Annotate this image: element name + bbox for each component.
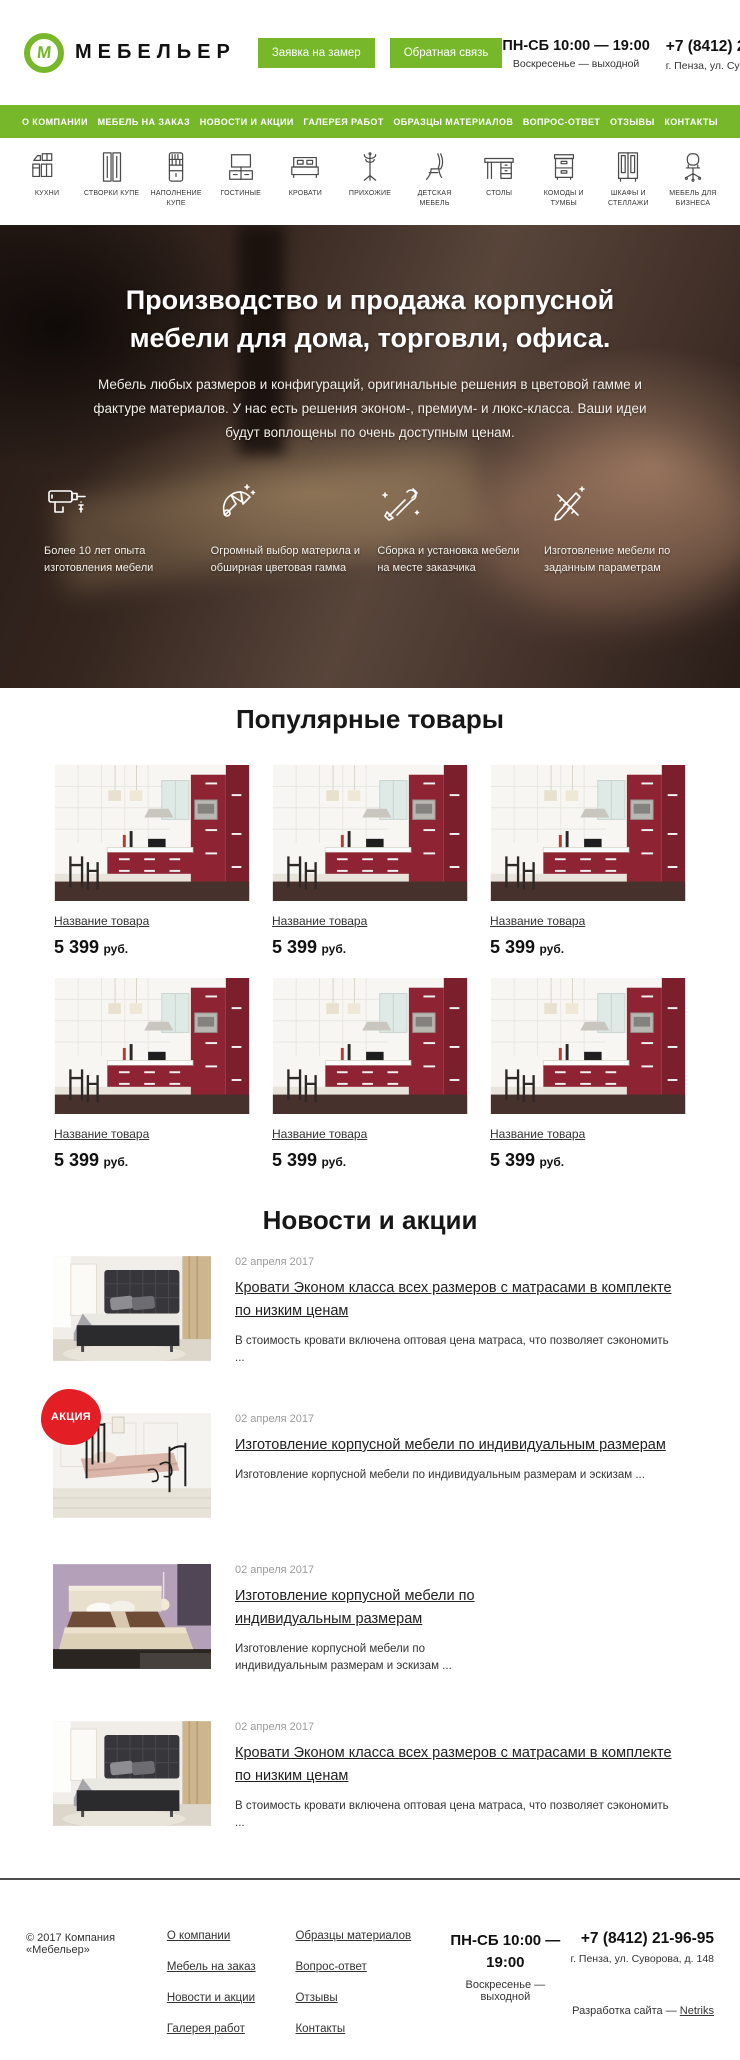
product-image-kitchen[interactable] [272, 978, 468, 1114]
phone-number: +7 (8412) 21-96-95 [666, 38, 740, 56]
feature-materials: Огромный выбор материла и обширная цвето… [211, 479, 363, 577]
category-item-tables[interactable]: СТОЛЫ [468, 150, 530, 225]
category-item-kids-furniture[interactable]: ДЕТСКАЯ МЕБЕЛЬ [404, 150, 466, 225]
product-price: 5 399 руб. [490, 1150, 686, 1171]
price-currency: руб. [322, 1155, 347, 1169]
news-body: 02 апреля 2017 Кровати Эконом класса все… [235, 1256, 680, 1367]
footer-link-gallery[interactable]: Галерея работ [167, 2023, 296, 2035]
kitchen-icon [30, 150, 64, 184]
news-item: АКЦИЯ 02 апреля 2017 Изготовление корпус… [0, 1413, 740, 1518]
price-currency: руб. [540, 942, 565, 956]
footer-schedule-dayoff: Воскресенье — выходной [440, 1979, 570, 2003]
news-item: 02 апреля 2017 Кровати Эконом класса все… [0, 1721, 740, 1832]
product-card: Название товара 5 399 руб. [490, 765, 686, 958]
feature-text: Более 10 лет опыта изготовления мебели [44, 543, 196, 577]
feedback-button[interactable]: Обратная связь [390, 38, 503, 68]
feature-assembly: Сборка и установка мебели на месте заказ… [377, 479, 529, 577]
nav-item-contacts[interactable]: КОНТАКТЫ [664, 117, 718, 127]
hero-subtitle: Мебель любых размеров и конфигураций, ор… [83, 373, 658, 445]
nav-item-gallery[interactable]: ГАЛЕРЕЯ РАБОТ [303, 117, 383, 127]
category-label: КОМОДЫ И ТУМБЫ [533, 189, 595, 209]
news-body: 02 апреля 2017 Изготовление корпусной ме… [235, 1413, 680, 1518]
category-item-sliding-doors[interactable]: СТВОРКИ КУПЕ [81, 150, 143, 225]
product-name-link[interactable]: Название товара [54, 914, 149, 928]
popular-products-section: Популярные товары Название товара 5 399 … [0, 688, 740, 1171]
feature-experience: Более 10 лет опыта изготовления мебели [44, 479, 196, 577]
product-name-link[interactable]: Название товара [272, 1127, 367, 1141]
footer-links-col1: О компании Мебель на заказ Новости и акц… [167, 1930, 296, 2054]
product-card: Название товара 5 399 руб. [272, 765, 468, 958]
category-label: КРОВАТИ [274, 189, 336, 199]
news-image-wrap [53, 1721, 211, 1826]
category-label: КУХНИ [16, 189, 78, 199]
footer-link-contacts[interactable]: Контакты [295, 2023, 424, 2035]
footer-phone: +7 (8412) 21-96-95 [571, 1930, 714, 1948]
news-title-link[interactable]: Кровати Эконом класса всех размеров с ма… [235, 1277, 680, 1323]
product-card: Название товара 5 399 руб. [54, 765, 250, 958]
product-name-link[interactable]: Название товара [490, 914, 585, 928]
category-label: СТВОРКИ КУПЕ [81, 189, 143, 199]
header-buttons: Заявка на замер Обратная связь [258, 38, 503, 68]
news-image-dark-bed[interactable] [53, 1256, 211, 1361]
feature-text: Сборка и установка мебели на месте заказ… [377, 543, 529, 577]
logo-letter: М [36, 43, 52, 63]
news-excerpt: В стоимость кровати включена оптовая цен… [235, 1798, 680, 1832]
footer-link-reviews[interactable]: Отзывы [295, 1992, 424, 2004]
price-currency: руб. [104, 1155, 129, 1169]
category-label: ШКАФЫ И СТЕЛЛАЖИ [597, 189, 659, 209]
footer: © 2017 Компания «Мебельер» О компании Ме… [0, 1878, 740, 2060]
nav-item-news[interactable]: НОВОСТИ И АКЦИИ [200, 117, 294, 127]
footer-schedule-hours: ПН-СБ 10:00 — 19:00 [440, 1930, 570, 1974]
feature-custom-sizes: Изготовление мебели по заданным параметр… [544, 479, 696, 577]
footer-link-faq[interactable]: Вопрос-ответ [295, 1961, 424, 1973]
product-grid: Название товара 5 399 руб. Название това… [54, 765, 686, 1171]
news-title-link[interactable]: Изготовление корпусной мебели по индивид… [235, 1585, 480, 1631]
category-item-business-furniture[interactable]: МЕБЕЛЬ ДЛЯ БИЗНЕСА [662, 150, 724, 225]
schedule-block: ПН-СБ 10:00 — 19:00 Воскресенье — выходн… [502, 38, 649, 70]
schedule-hours: ПН-СБ 10:00 — 19:00 [502, 38, 649, 54]
header-contacts: ПН-СБ 10:00 — 19:00 Воскресенье — выходн… [502, 34, 740, 72]
logo[interactable]: М МЕБЕЛЬЕР [24, 33, 236, 73]
price-currency: руб. [104, 942, 129, 956]
product-name-link[interactable]: Название товара [272, 914, 367, 928]
tools-icon [377, 479, 425, 527]
news-image-wood-bed[interactable] [53, 1564, 211, 1669]
feature-text: Изготовление мебели по заданным параметр… [544, 543, 696, 577]
news-date: 02 апреля 2017 [235, 1256, 680, 1268]
chair-icon [418, 150, 452, 184]
coat-rack-icon [353, 150, 387, 184]
news-image-wrap: АКЦИЯ [53, 1413, 211, 1518]
product-image-kitchen[interactable] [272, 765, 468, 901]
category-label: ДЕТСКАЯ МЕБЕЛЬ [404, 189, 466, 209]
news-excerpt: В стоимость кровати включена оптовая цен… [235, 1333, 680, 1367]
price-currency: руб. [540, 1155, 565, 1169]
category-item-hallways[interactable]: ПРИХОЖИЕ [339, 150, 401, 225]
copyright: © 2017 Компания «Мебельер» [26, 1930, 167, 1956]
category-item-chests[interactable]: КОМОДЫ И ТУМБЫ [533, 150, 595, 225]
category-item-living-rooms[interactable]: ГОСТИНЫЕ [210, 150, 272, 225]
news-excerpt: Изготовление корпусной мебели по индивид… [235, 1467, 680, 1484]
category-label: ГОСТИНЫЕ [210, 189, 272, 199]
logo-icon: М [24, 33, 64, 73]
product-name-link[interactable]: Название товара [490, 1127, 585, 1141]
site-credits: Разработка сайта — Netriks [571, 2005, 714, 2017]
hero-features: Более 10 лет опыта изготовления мебели О… [0, 445, 740, 577]
category-item-wardrobes[interactable]: ШКАФЫ И СТЕЛЛАЖИ [597, 150, 659, 225]
news-date: 02 апреля 2017 [235, 1721, 680, 1733]
footer-address: г. Пенза, ул. Суворова, д. 148 [571, 1953, 714, 1965]
price-value: 5 399 [272, 937, 317, 957]
category-label: СТОЛЫ [468, 189, 530, 199]
footer-schedule: ПН-СБ 10:00 — 19:00 Воскресенье — выходн… [440, 1930, 570, 2003]
drafting-icon [544, 479, 592, 527]
tv-stand-icon [224, 150, 258, 184]
request-measure-button[interactable]: Заявка на замер [258, 38, 375, 68]
shelving-icon [159, 150, 193, 184]
product-price: 5 399 руб. [490, 937, 686, 958]
product-card: Название товара 5 399 руб. [272, 978, 468, 1171]
news-item: 02 апреля 2017 Изготовление корпусной ме… [0, 1564, 740, 1675]
price-value: 5 399 [490, 1150, 535, 1170]
news-image-dark-bed[interactable] [53, 1721, 211, 1826]
news-body: 02 апреля 2017 Кровати Эконом класса все… [235, 1721, 680, 1832]
header: М МЕБЕЛЬЕР Заявка на замер Обратная связ… [0, 0, 740, 105]
footer-contact: +7 (8412) 21-96-95 г. Пенза, ул. Суворов… [571, 1930, 714, 2017]
product-card: Название товара 5 399 руб. [54, 978, 250, 1171]
category-item-beds[interactable]: КРОВАТИ [274, 150, 336, 225]
news-list: 02 апреля 2017 Кровати Эконом класса все… [0, 1256, 740, 1832]
product-price: 5 399 руб. [272, 937, 468, 958]
price-value: 5 399 [54, 1150, 99, 1170]
office-chair-icon [676, 150, 710, 184]
product-image-kitchen[interactable] [490, 978, 686, 1114]
products-section-title: Популярные товары [0, 704, 740, 735]
category-item-wardrobe-filling[interactable]: НАПОЛНЕНИЕ КУПЕ [145, 150, 207, 225]
price-value: 5 399 [490, 937, 535, 957]
product-image-kitchen[interactable] [54, 978, 250, 1114]
address: г. Пенза, ул. Суворова, д. 148 [666, 60, 740, 72]
nav-item-about[interactable]: О КОМПАНИИ [22, 117, 88, 127]
bed-icon [288, 150, 322, 184]
category-label: МЕБЕЛЬ ДЛЯ БИЗНЕСА [662, 189, 724, 209]
hero-title: Производство и продажа корпусной мебели … [75, 225, 665, 357]
news-image-wrap [53, 1564, 211, 1669]
news-item: 02 апреля 2017 Кровати Эконом класса все… [0, 1256, 740, 1367]
category-item-kitchens[interactable]: КУХНИ [16, 150, 78, 225]
news-title-link[interactable]: Изготовление корпусной мебели по индивид… [235, 1434, 666, 1457]
hero-banner: Производство и продажа корпусной мебели … [0, 225, 740, 688]
footer-link-about[interactable]: О компании [167, 1930, 296, 1942]
drill-icon [44, 479, 92, 527]
feature-text: Огромный выбор материла и обширная цвето… [211, 543, 363, 577]
news-date: 02 апреля 2017 [235, 1413, 680, 1425]
news-image-wrap [53, 1256, 211, 1361]
product-name-link[interactable]: Название товара [54, 1127, 149, 1141]
product-price: 5 399 руб. [54, 1150, 250, 1171]
product-image-kitchen[interactable] [54, 765, 250, 901]
nav-item-materials[interactable]: ОБРАЗЦЫ МАТЕРИАЛОВ [393, 117, 513, 127]
footer-link-materials[interactable]: Образцы материалов [295, 1930, 424, 1942]
price-currency: руб. [322, 942, 347, 956]
schedule-dayoff: Воскресенье — выходной [502, 58, 649, 70]
product-card: Название товара 5 399 руб. [490, 978, 686, 1171]
desk-icon [482, 150, 516, 184]
news-date: 02 апреля 2017 [235, 1564, 680, 1576]
wardrobe-icon [611, 150, 645, 184]
footer-link-custom-furniture[interactable]: Мебель на заказ [167, 1961, 296, 1973]
news-title-link[interactable]: Кровати Эконом класса всех размеров с ма… [235, 1742, 680, 1788]
footer-link-news[interactable]: Новости и акции [167, 1992, 296, 2004]
news-section-title: Новости и акции [0, 1205, 740, 1236]
category-bar: КУХНИ СТВОРКИ КУПЕ НАПОЛНЕНИЕ КУПЕ ГОСТИ… [0, 138, 740, 225]
price-value: 5 399 [272, 1150, 317, 1170]
product-price: 5 399 руб. [272, 1150, 468, 1171]
brand-text: МЕБЕЛЬЕР [75, 41, 236, 64]
nav-item-custom-furniture[interactable]: МЕБЕЛЬ НА ЗАКАЗ [98, 117, 191, 127]
product-price: 5 399 руб. [54, 937, 250, 958]
category-label: НАПОЛНЕНИЕ КУПЕ [145, 189, 207, 209]
nav-item-reviews[interactable]: ОТЗЫВЫ [610, 117, 655, 127]
credits-prefix: Разработка сайта — [572, 2005, 680, 2017]
news-section: Новости и акции 02 апреля 2017 Кровати Э… [0, 1171, 740, 1832]
contact-block: +7 (8412) 21-96-95 г. Пенза, ул. Суворов… [666, 38, 740, 72]
product-image-kitchen[interactable] [490, 765, 686, 901]
news-body: 02 апреля 2017 Изготовление корпусной ме… [235, 1564, 680, 1675]
nav-item-faq[interactable]: ВОПРОС-ОТВЕТ [523, 117, 600, 127]
promo-badge: АКЦИЯ [41, 1389, 101, 1445]
sliding-doors-icon [95, 150, 129, 184]
main-nav: О КОМПАНИИ МЕБЕЛЬ НА ЗАКАЗ НОВОСТИ И АКЦ… [0, 105, 740, 138]
news-excerpt: Изготовление корпусной мебели по индивид… [235, 1641, 490, 1675]
credits-link[interactable]: Netriks [680, 2005, 714, 2017]
footer-links-col2: Образцы материалов Вопрос-ответ Отзывы К… [295, 1930, 424, 2054]
category-label: ПРИХОЖИЕ [339, 189, 401, 199]
price-value: 5 399 [54, 937, 99, 957]
drawers-icon [547, 150, 581, 184]
color-fan-icon [211, 479, 259, 527]
